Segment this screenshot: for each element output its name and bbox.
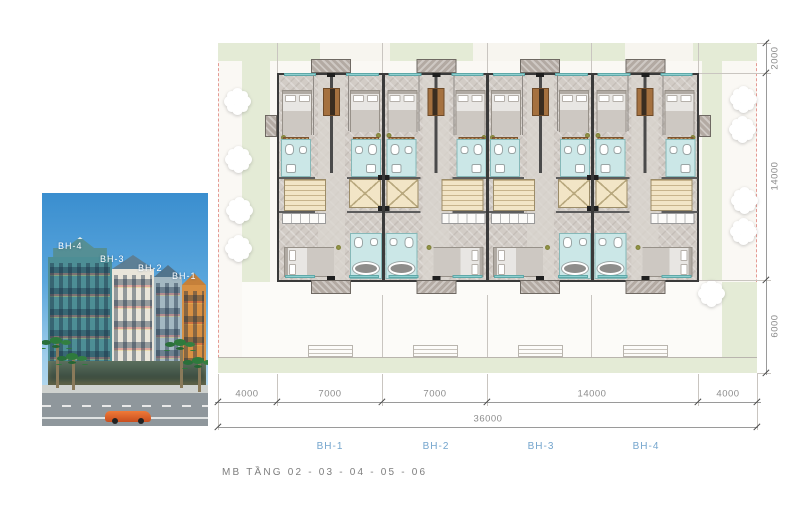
interior-wall (453, 75, 454, 135)
interior-wall (347, 211, 383, 213)
shower-icon (471, 164, 481, 173)
interior-wall (522, 75, 523, 135)
bathroom (281, 139, 311, 177)
sink-icon (669, 146, 677, 154)
dimension-line-total (218, 427, 758, 428)
entry-steps (413, 345, 458, 357)
palm-tree-icon (72, 356, 75, 390)
entry-steps (308, 345, 353, 357)
toilet-icon (682, 144, 691, 155)
bathroom (456, 139, 486, 177)
terrace-divider (487, 295, 488, 357)
palm-tree-icon (180, 342, 183, 388)
balcony (416, 59, 456, 73)
dim-4000-left: 4000 (235, 389, 258, 400)
toilet-icon (285, 144, 294, 155)
building-render-photo: BH-4 BH-3 BH-2 BH-1 (42, 193, 208, 426)
balcony (311, 280, 351, 294)
unit-label-bh3: BH-3 (528, 441, 555, 452)
wardrobe-icon (427, 88, 444, 116)
sink-icon (508, 146, 516, 154)
staircase-icon (493, 179, 535, 211)
void-shaft-icon (386, 179, 418, 208)
extension-line (699, 73, 771, 74)
sink-icon (564, 146, 572, 154)
palm-fronds (50, 337, 62, 344)
shower-icon (600, 164, 610, 173)
wardrobe-icon (636, 88, 653, 116)
window-strip (660, 73, 692, 76)
tree-icon (739, 95, 748, 104)
sink-icon (579, 238, 587, 246)
toilet-icon (354, 237, 363, 248)
balcony (416, 280, 456, 294)
bathtub-icon (562, 262, 588, 275)
palm-tree-icon (56, 340, 59, 388)
palm-fronds (174, 339, 186, 346)
bathroom (490, 139, 520, 177)
palm-fronds (66, 353, 78, 360)
shower-icon (391, 164, 401, 173)
bathroom (595, 139, 625, 177)
bathroom (594, 233, 626, 279)
bathtub-icon (597, 262, 623, 275)
toilet-icon (494, 144, 503, 155)
unit-label-bh1: BH-1 (317, 441, 344, 452)
toilet-icon (404, 237, 413, 248)
lane-marking (42, 405, 208, 407)
plant-icon (426, 245, 431, 250)
bed-icon (596, 90, 626, 132)
sink-icon (299, 146, 307, 154)
car-wheel (138, 418, 144, 424)
landscape-strip (702, 61, 722, 280)
wardrobe-icon (532, 88, 549, 116)
grid-line (591, 43, 592, 73)
bed-icon (387, 90, 417, 132)
window-strip (452, 275, 482, 278)
shower-icon (495, 164, 505, 173)
dim-14000: 14000 (578, 389, 607, 400)
tree-icon (233, 97, 242, 106)
photo-label-bh3: BH-3 (100, 254, 125, 264)
bathroom (559, 233, 591, 279)
window-strip (349, 275, 379, 278)
townhouse-unit (593, 75, 698, 280)
grid-line (698, 43, 699, 73)
window-strip (555, 73, 588, 76)
side-balcony (265, 115, 277, 137)
bed-icon (282, 90, 312, 135)
toilet-icon (368, 144, 377, 155)
entry-steps (623, 345, 668, 357)
void-shaft-icon (558, 179, 590, 208)
unit-label-bh4: BH-4 (633, 441, 660, 452)
sink-icon (370, 238, 378, 246)
sink-icon (355, 146, 363, 154)
balcony (311, 59, 351, 73)
terrace-edge (218, 357, 757, 358)
bed-icon (642, 247, 692, 277)
drawing-title: MB TẦNG 02 - 03 - 04 - 05 - 06 (222, 467, 427, 478)
car-icon (105, 411, 151, 422)
entry-steps (518, 345, 563, 357)
shower-icon (366, 164, 376, 173)
party-wall (486, 75, 489, 280)
column (327, 73, 335, 77)
unit-label-bh2: BH-2 (423, 441, 450, 452)
kitchen-counter-icon (650, 213, 694, 224)
toilet-icon (390, 144, 399, 155)
shower-icon (575, 164, 585, 173)
bathtub-icon (353, 262, 379, 275)
bed-icon (455, 90, 485, 135)
sink-icon (460, 146, 468, 154)
plant-icon (545, 245, 550, 250)
bed-icon (284, 247, 334, 277)
sink-icon (613, 146, 621, 154)
bed-icon (664, 90, 694, 135)
toilet-icon (473, 144, 482, 155)
window-strip (284, 73, 316, 76)
interior-wall (556, 211, 592, 213)
interior-wall (627, 75, 628, 131)
toilet-icon (577, 144, 586, 155)
kitchen-counter-icon (282, 213, 326, 224)
tree-icon (234, 155, 243, 164)
window-strip (388, 275, 418, 278)
window-strip (285, 275, 315, 278)
dim-6000: 6000 (770, 314, 781, 337)
bathroom (350, 233, 382, 279)
balcony (625, 280, 665, 294)
bathroom (351, 139, 381, 177)
sink-icon (598, 238, 606, 246)
interior-wall (313, 75, 314, 135)
plant-icon (635, 245, 640, 250)
window-strip (451, 73, 483, 76)
balcony (625, 59, 665, 73)
balcony (520, 280, 560, 294)
landscape-strip (218, 357, 757, 373)
interior-wall (384, 211, 420, 213)
staircase-icon (650, 179, 692, 211)
window-strip (494, 275, 524, 278)
grid-line (382, 43, 383, 73)
void-shaft-icon (595, 179, 627, 208)
tree-icon (739, 227, 748, 236)
shower-icon (680, 164, 690, 173)
interior-wall (557, 75, 558, 131)
dimension-line (215, 402, 761, 403)
window-strip (661, 275, 691, 278)
toilet-icon (563, 237, 572, 248)
wardrobe-icon (323, 88, 340, 116)
bed-icon (491, 90, 521, 135)
staircase-icon (284, 179, 326, 211)
brochure-page: BH-4 BH-3 BH-2 BH-1 (0, 0, 800, 519)
party-wall (382, 75, 385, 280)
window-strip (388, 73, 421, 76)
column (536, 73, 544, 77)
interior-wall (348, 75, 349, 131)
interior-wall (418, 75, 419, 131)
dim-2000: 2000 (770, 46, 781, 69)
terrace-divider (382, 295, 383, 357)
window-strip (346, 73, 379, 76)
shower-icon (286, 164, 296, 173)
tree-icon (707, 289, 716, 298)
kitchen-counter-icon (441, 213, 485, 224)
photo-label-bh1: BH-1 (172, 271, 197, 281)
window-strip (493, 73, 525, 76)
tree-icon (235, 206, 244, 215)
toilet-icon (613, 237, 622, 248)
staircase-icon (441, 179, 483, 211)
dim-14000-side: 14000 (770, 162, 781, 191)
bathroom (560, 139, 590, 177)
toilet-icon (599, 144, 608, 155)
photo-label-bh4: BH-4 (58, 241, 83, 251)
balcony (520, 59, 560, 73)
plant-icon (336, 245, 341, 250)
townhouse-unit (384, 75, 489, 280)
townhouse-unit (488, 75, 593, 280)
palm-fronds (192, 357, 204, 364)
grid-line (487, 43, 488, 73)
window-strip (597, 73, 630, 76)
bathtub-icon (388, 262, 414, 275)
dim-total-36000: 36000 (474, 414, 503, 425)
column (432, 73, 440, 77)
party-wall (591, 75, 594, 280)
bathroom (385, 233, 417, 279)
tree-icon (738, 125, 747, 134)
bed-icon (493, 247, 543, 277)
sidewalk (42, 385, 208, 393)
window-strip (597, 275, 627, 278)
tree-icon (234, 244, 243, 253)
void-shaft-icon (349, 179, 381, 208)
bathroom (386, 139, 416, 177)
dim-7000-b: 7000 (423, 389, 446, 400)
side-balcony (699, 115, 711, 137)
photo-label-bh2: BH-2 (138, 263, 163, 273)
dimension-line-right (766, 41, 767, 375)
terrace-divider (591, 295, 592, 357)
grid-line (277, 43, 278, 73)
extension-line (699, 280, 771, 281)
bed-icon (433, 247, 483, 277)
window-strip (558, 275, 588, 278)
kitchen-counter-icon (491, 213, 535, 224)
bathroom (665, 139, 695, 177)
interior-wall (662, 75, 663, 135)
bed-icon (559, 90, 589, 132)
interior-wall (593, 211, 629, 213)
bed-icon (350, 90, 380, 132)
townhouse-unit (279, 75, 384, 280)
sink-icon (389, 238, 397, 246)
dim-7000-a: 7000 (318, 389, 341, 400)
sink-icon (404, 146, 412, 154)
column (641, 73, 649, 77)
dim-4000-right: 4000 (716, 389, 739, 400)
palm-tree-icon (198, 360, 201, 392)
tree-icon (740, 196, 749, 205)
car-wheel (112, 418, 118, 424)
